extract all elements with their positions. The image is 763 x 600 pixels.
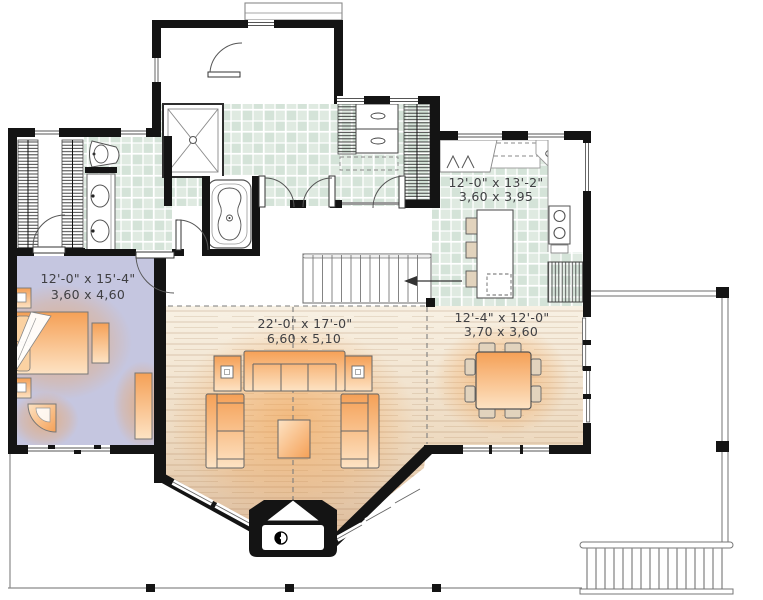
loveseat-left: [206, 394, 244, 468]
window: [458, 131, 502, 140]
dining-dim-metric: 3,70 x 3,60: [464, 324, 538, 339]
floor-plan-svg: 12'-0" x 15'-4" 3,60 x 4,60 12'-0" x 13'…: [0, 0, 763, 600]
dining-chair: [465, 386, 475, 402]
dining-set: [465, 343, 541, 418]
window: [35, 128, 59, 137]
island-stool: [466, 218, 477, 234]
floor-plan-canvas: 12'-0" x 15'-4" 3,60 x 4,60 12'-0" x 13'…: [0, 0, 763, 600]
newel-post: [426, 298, 435, 307]
window: [121, 128, 146, 137]
linen-closet: [404, 104, 430, 202]
dining-chair: [531, 359, 541, 375]
bathtub: [202, 176, 260, 252]
window: [390, 96, 418, 104]
fireplace: [249, 500, 337, 557]
island-stool: [466, 242, 477, 258]
front-porch: [245, 3, 342, 20]
end-table: [345, 356, 372, 391]
bed: [13, 312, 88, 374]
dining-chair: [465, 359, 475, 375]
dresser: [92, 323, 109, 363]
sofa: [244, 351, 345, 391]
kitchen-island: [466, 210, 513, 298]
patio-door: [583, 317, 592, 423]
double-vanity: [87, 174, 115, 254]
dining-dim-imperial: 12'-4" x 12'-0": [455, 310, 550, 325]
bedroom-sliding-door: [28, 445, 110, 454]
kitchen-dim-imperial: 12'-0" x 13'-2": [449, 175, 544, 190]
living-dim-metric: 6,60 x 5,10: [267, 331, 341, 346]
coffee-table: [278, 420, 310, 458]
tall-dresser: [135, 373, 152, 439]
bedroom-dim-imperial: 12'-0" x 15'-4": [41, 271, 136, 286]
half-wall: [342, 202, 400, 205]
bedroom-dim-metric: 3,60 x 4,60: [51, 287, 125, 302]
window: [248, 20, 274, 28]
window-triple: [463, 445, 549, 454]
dining-chair: [531, 386, 541, 402]
shower-drain-icon: [190, 137, 197, 144]
island-stool: [466, 271, 477, 287]
wood-stove-icon: [275, 532, 287, 544]
loveseat-right: [341, 394, 379, 468]
end-table: [214, 356, 241, 391]
kitchen-counter-top: [440, 140, 540, 172]
dining-table: [476, 352, 531, 409]
kitchen-right-counter: [548, 140, 583, 253]
kitchen-dim-metric: 3,60 x 3,95: [459, 189, 533, 204]
window: [583, 143, 591, 191]
living-dim-imperial: 22'-0" x 17'-0": [258, 316, 353, 331]
window: [337, 96, 364, 104]
refrigerator: [548, 262, 583, 302]
window: [152, 58, 161, 82]
window: [528, 131, 564, 140]
